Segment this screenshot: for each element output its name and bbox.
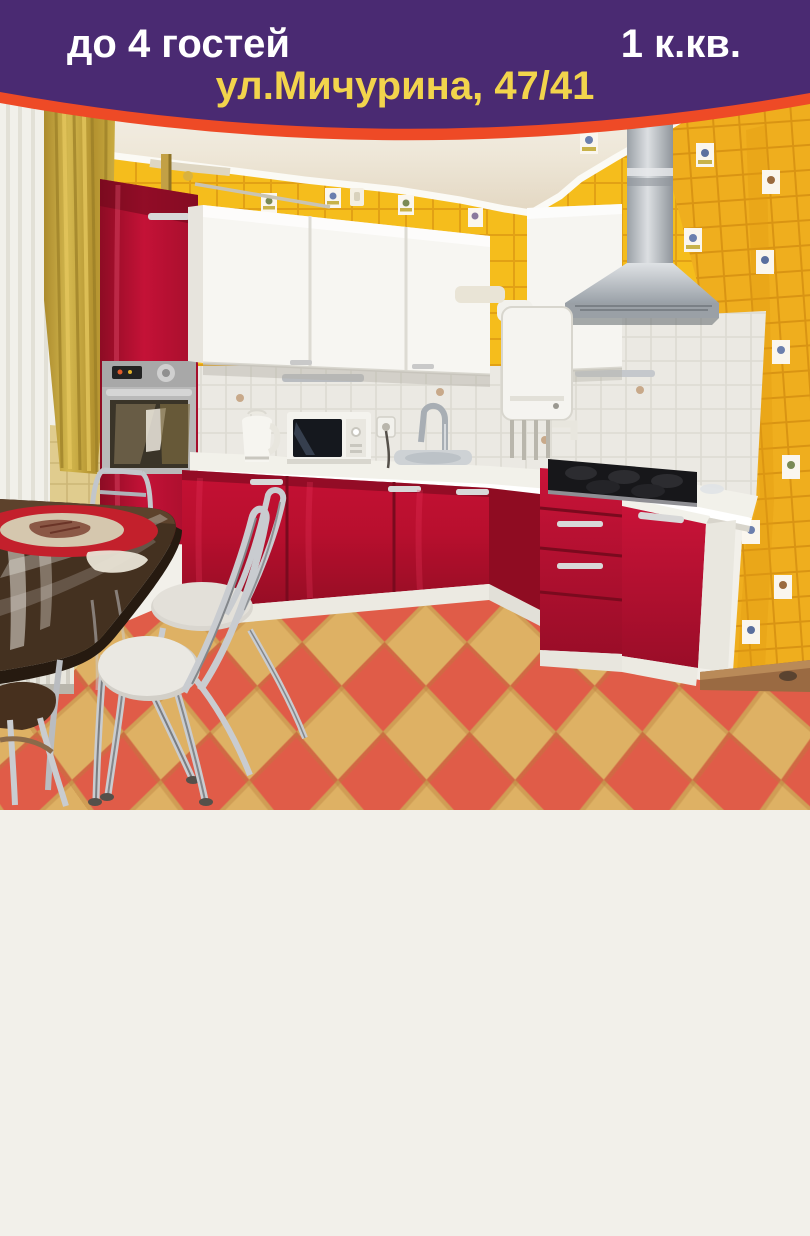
svg-text:до 4 гостей: до 4 гостей	[67, 22, 290, 66]
svg-text:ул.Мичурина, 47/41: ул.Мичурина, 47/41	[216, 64, 595, 108]
svg-text:1 к.кв.: 1 к.кв.	[621, 22, 741, 66]
